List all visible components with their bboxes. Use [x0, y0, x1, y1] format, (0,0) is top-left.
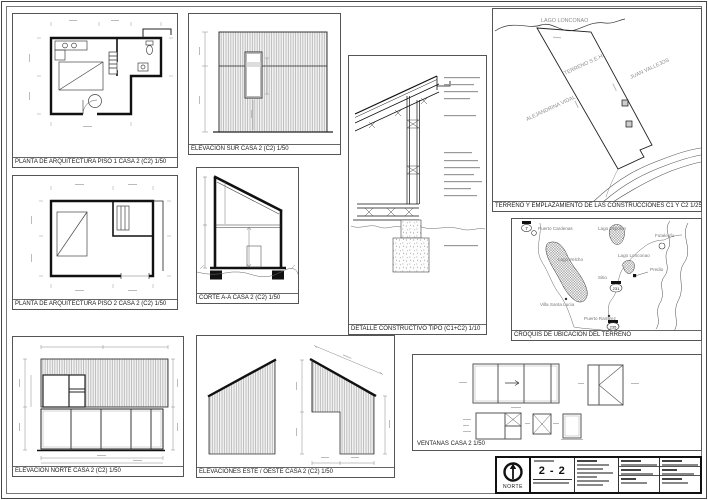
road [593, 148, 701, 202]
sink [138, 63, 148, 71]
contents-line [577, 472, 613, 474]
foundation-footing [393, 238, 429, 272]
window-small-awning [533, 414, 551, 434]
label-lago-lonconao: Lago Lonconao [618, 253, 650, 258]
route-235-number: 235 [610, 324, 617, 329]
south-elevation-drawing [189, 14, 340, 145]
project-row [619, 475, 659, 484]
route-shield-7: 7 [522, 221, 532, 232]
label-lago: LAGO LONCONAO [541, 18, 588, 24]
footing-left [210, 271, 222, 280]
contents-header-line [577, 460, 597, 462]
label-puerto-cardenas: Puerto Cardenas [538, 226, 573, 231]
label-puerto-ramirez: Puerto Ramirez [584, 316, 617, 321]
toilet [146, 41, 153, 55]
wall-assembly [407, 96, 420, 204]
credits-row [660, 475, 700, 484]
annotation-text-lines [444, 77, 482, 246]
panel-planta-piso1: PLANTA DE ARQUITECTURA PISO 1 CASA 2 (C2… [12, 13, 178, 168]
panel-elevacion-sur: ELEVACION SUR CASA 2 (C2) 1/50 [188, 13, 341, 155]
lower-glazing [41, 409, 163, 449]
contents-line [577, 476, 597, 478]
kitchen-counter [55, 41, 87, 60]
label-predio: Predio [650, 267, 664, 272]
window-sliding [473, 364, 559, 403]
windows-schedule-drawing [413, 355, 701, 441]
foundation-stem [401, 220, 421, 238]
house-c1 [622, 100, 628, 106]
caption-corte: CORTE A-A CASA 2 (C2) 1/50 [197, 293, 298, 303]
section-drawing [197, 168, 298, 294]
east-west-elevations-drawing [197, 336, 394, 468]
field-header-line [621, 469, 641, 471]
lago-yelcho-shape [546, 242, 587, 302]
parcel-boundary [537, 28, 652, 169]
floor-plan-piso1-drawing [13, 14, 177, 158]
puerto-cardenas-marker [532, 231, 537, 236]
caption-planta-piso1: PLANTA DE ARQUITECTURA PISO 1 CASA 2 (C2… [13, 157, 177, 167]
sheet-number: 2 - 2 [531, 465, 574, 477]
caption-terreno: TERRENO Y EMPLAZAMIENTO DE LAS CONSTRUCC… [493, 201, 701, 211]
bed [59, 62, 103, 90]
north-arrow-cell: NORTE [497, 458, 529, 492]
dim-marks [459, 382, 639, 440]
stair-opening [121, 273, 149, 279]
east-elevation [208, 360, 276, 455]
panel-elevacion-norte: ELEVACION NORTE CASA 2 (C2) 1/50 [12, 336, 184, 477]
roof-inner-line [217, 182, 279, 214]
caption-ventanas: VENTANAS CASA 2 1/50 [415, 440, 485, 449]
label-sitio: Sitio [598, 275, 607, 280]
contents-line [577, 468, 603, 470]
side-stub [153, 201, 163, 271]
field-header-line [621, 460, 641, 462]
floor-assembly [353, 204, 419, 220]
panel-ventanas: VENTANAS CASA 2 1/50 [412, 354, 702, 451]
window [245, 52, 262, 98]
label-futaleufu: Futaleufu [655, 233, 675, 238]
table [89, 95, 102, 108]
contents-cell [574, 458, 618, 492]
panel-croquis-ubicacion: 7 231 235 Puerto Cardenas Lago Espolon F… [511, 218, 702, 341]
sheet-number-header-line [534, 460, 554, 462]
bed [57, 212, 87, 256]
closet [117, 206, 129, 230]
section-structure [210, 176, 286, 268]
entry-stub [143, 29, 171, 38]
credits-row [660, 466, 700, 475]
label-lago-espolon: Lago Espolon [598, 226, 627, 231]
futaleufu-marker [659, 243, 665, 249]
contents-line [577, 480, 609, 482]
site-plan-drawing: LAGO LONCONAO TERRENO S.E.H. JUAN VALLEJ… [493, 9, 701, 202]
north-label: NORTE [503, 484, 523, 490]
divider [533, 479, 572, 480]
window-fixed [563, 414, 581, 438]
dim-marks [29, 20, 119, 127]
west-elevation [310, 359, 376, 454]
site-labels: LAGO LONCONAO TERRENO S.E.H. JUAN VALLEJ… [525, 18, 670, 123]
field-header-line [662, 460, 682, 462]
field-value-line [621, 482, 647, 484]
lago-lonconao-shape [623, 260, 635, 273]
caption-croquis: CROQUIS DE UBICACION DEL TERRENO [512, 330, 701, 340]
route-231-number: 231 [613, 286, 620, 291]
sheet-number-cell: 2 - 2 [529, 458, 574, 492]
panel-elevaciones-este-oeste: ELEVACIONES ESTE / OESTE CASA 2 (C2) 1/5… [196, 335, 395, 478]
caption-elevacion-sur: ELEVACION SUR CASA 2 (C2) 1/50 [189, 144, 340, 154]
stair-ladder [109, 52, 117, 74]
upper-floor-line [215, 225, 281, 228]
construction-detail-drawing [349, 56, 486, 325]
villa-santa-lucia-marker [565, 298, 567, 300]
predio-marker [633, 272, 648, 277]
project-row [619, 466, 659, 475]
caption-elevacion-norte: ELEVACION NORTE CASA 2 (C2) 1/50 [13, 466, 183, 476]
project-cell [618, 458, 659, 492]
route-shield-231: 231 [610, 281, 622, 292]
siding-wall [219, 32, 327, 132]
title-block: NORTE 2 - 2 [495, 456, 702, 494]
lakes [546, 225, 635, 302]
window-kitchen [476, 413, 521, 439]
label-lago-yelcho: Lago Yelcho [558, 257, 583, 262]
credits-cell [659, 458, 700, 492]
sheet-subtitle-line [533, 482, 569, 484]
contents-line [577, 464, 609, 466]
north-elevation-drawing [13, 337, 183, 467]
contents-line [577, 484, 603, 486]
panel-planta-piso2: PLANTA DE ARQUITECTURA PISO 2 CASA 2 (C2… [12, 175, 178, 310]
label-terreno: TERRENO S.E.H. [563, 53, 605, 77]
caption-planta-piso2: PLANTA DE ARQUITECTURA PISO 2 CASA 2 (C2… [13, 299, 177, 309]
panel-terreno-emplazamiento: LAGO LONCONAO TERRENO S.E.H. JUAN VALLEJ… [492, 8, 702, 212]
panel-detalle-constructivo: DETALLE CONSTRUCTIVO TIPO (C1+C2) 1/10 [348, 55, 487, 335]
floor-plan-piso2-drawing [13, 176, 177, 300]
panel-corte-aa: CORTE A-A CASA 2 (C2) 1/50 [196, 167, 299, 304]
door-swing [83, 100, 97, 117]
label-villa-santa-lucia: Villa Santa Lucia [540, 302, 575, 307]
caption-elevaciones-este-oeste: ELEVACIONES ESTE / OESTE CASA 2 (C2) 1/5… [197, 467, 394, 477]
upper-windows [43, 375, 85, 407]
label-vecino-este: JUAN VALLEJOS [629, 57, 670, 81]
field-value-line [662, 482, 688, 484]
label-vecino-oeste: ALEJANDRINA VIDAL [525, 95, 576, 123]
location-sketch-drawing: 7 231 235 Puerto Cardenas Lago Espolon F… [512, 219, 701, 331]
window-casement [588, 365, 623, 405]
field-header-line [662, 469, 677, 471]
drawing-sheet: PLANTA DE ARQUITECTURA PISO 1 CASA 2 (C2… [0, 0, 708, 500]
north-arrow-icon [502, 461, 524, 483]
exterior-walls [51, 38, 161, 114]
route-shield-235: 235 [607, 320, 619, 330]
field-header-line [621, 478, 636, 480]
field-header-line [662, 478, 682, 480]
house-c2 [626, 121, 632, 127]
roof-assembly [355, 76, 450, 131]
caption-detalle: DETALLE CONSTRUCTIVO TIPO (C1+C2) 1/10 [349, 324, 486, 334]
